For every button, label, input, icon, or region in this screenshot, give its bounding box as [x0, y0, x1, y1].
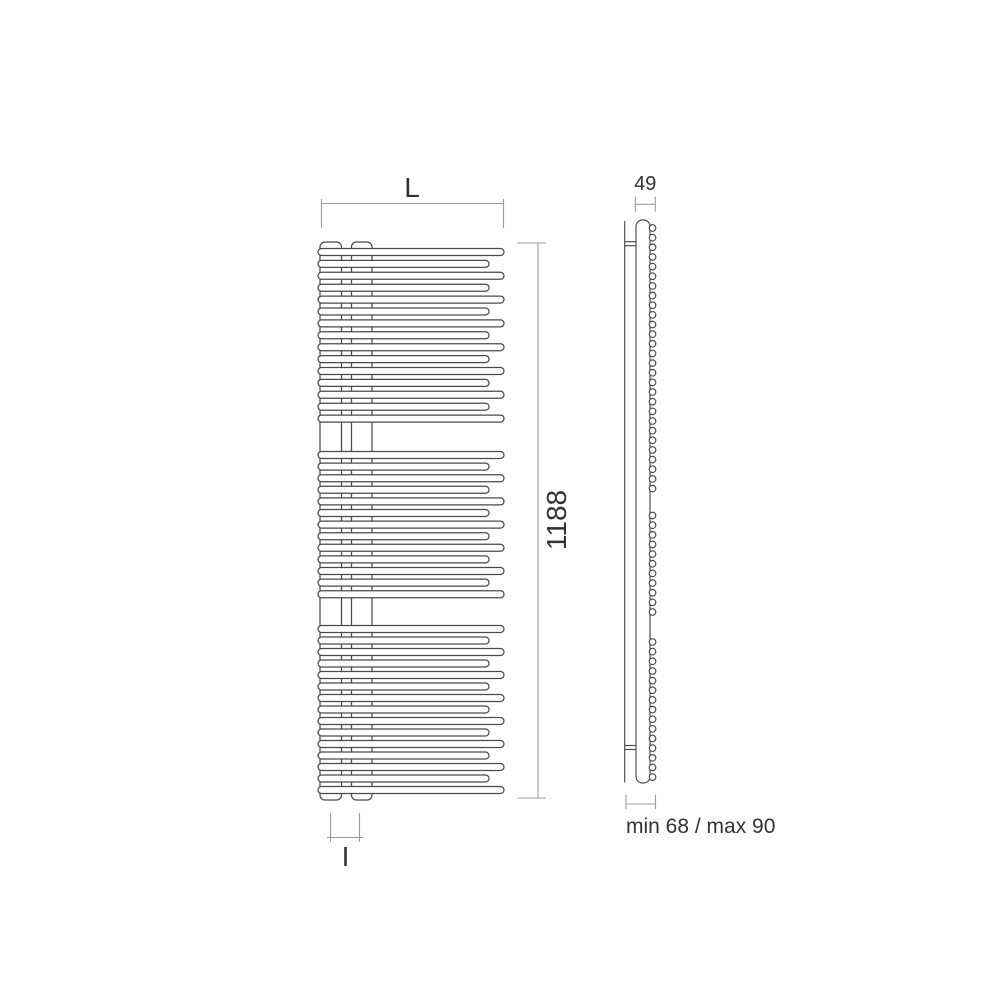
- tube-group3-row1: [318, 626, 504, 633]
- tube-end-circle-g3-12: [649, 745, 656, 752]
- tube-group1-row14: [318, 403, 489, 410]
- tube-end-circle-g1-10: [649, 312, 656, 319]
- tube-end-circle-g3-14: [649, 764, 656, 771]
- tube-end-circle-g3-11: [649, 735, 656, 742]
- tube-group3-row2: [318, 637, 489, 644]
- tube-group1-row9: [318, 344, 504, 351]
- tube-group2-row6: [318, 510, 489, 517]
- tube-end-circle-g3-4: [649, 668, 656, 675]
- tube-group3-row7: [318, 695, 504, 702]
- tube-end-circle-g1-13: [649, 341, 656, 348]
- tube-end-circle-g3-3: [649, 658, 656, 665]
- tube-end-circle-g1-2: [649, 234, 656, 241]
- tube-end-circle-g1-28: [649, 485, 656, 492]
- tube-group1-row8: [318, 332, 489, 339]
- dim-wall-distance: min 68 / max 90: [626, 795, 775, 838]
- tube-end-circle-g2-8: [649, 580, 656, 587]
- tube-end-circle-g1-18: [649, 389, 656, 396]
- tube-end-circle-g1-21: [649, 418, 656, 425]
- tube-group2-row3: [318, 475, 504, 482]
- tube-end-circle-g1-12: [649, 331, 656, 338]
- tube-end-circle-g3-7: [649, 697, 656, 704]
- tube-group1-row13: [318, 391, 504, 398]
- tube-end-circle-g2-10: [649, 599, 656, 606]
- dim-label-wall-distance: min 68 / max 90: [626, 815, 775, 838]
- tube-end-circle-g1-27: [649, 476, 656, 483]
- tube-group1-row15: [318, 415, 504, 422]
- tube-end-circle-g1-3: [649, 244, 656, 251]
- tube-end-circle-g1-7: [649, 283, 656, 290]
- tube-end-circle-g3-1: [649, 639, 656, 646]
- tube-end-circle-g2-3: [649, 532, 656, 539]
- radiator-dimension-diagram: L1188I49min 68 / max 90: [0, 0, 1000, 1000]
- tube-end-circle-g1-25: [649, 456, 656, 463]
- tube-end-circle-g2-7: [649, 570, 656, 577]
- tube-end-circle-g1-19: [649, 398, 656, 405]
- tube-end-circle-g1-20: [649, 408, 656, 415]
- tube-group3-row8: [318, 706, 489, 713]
- tube-end-circle-g1-26: [649, 466, 656, 473]
- tube-end-circle-g2-1: [649, 512, 656, 519]
- tube-end-circle-g1-4: [649, 254, 656, 261]
- tube-group3-row5: [318, 672, 504, 679]
- tube-end-circle-g3-10: [649, 726, 656, 733]
- dim-label-height: 1188: [541, 490, 572, 550]
- tube-group3-row11: [318, 741, 504, 748]
- tube-end-circle-g3-15: [649, 774, 656, 781]
- tube-group2-row4: [318, 486, 489, 493]
- side-view: [625, 220, 656, 783]
- tube-group3-row15: [318, 787, 504, 794]
- tube-group1-row5: [318, 296, 504, 303]
- tube-group3-row14: [318, 775, 489, 782]
- tube-group1-row11: [318, 368, 504, 375]
- tube-end-circle-g1-6: [649, 273, 656, 280]
- tube-end-circle-g3-9: [649, 716, 656, 723]
- tube-group2-row12: [318, 579, 489, 586]
- tube-end-circle-g1-9: [649, 302, 656, 309]
- tube-end-circle-g1-14: [649, 350, 656, 357]
- tube-group3-row3: [318, 649, 504, 656]
- front-view: [318, 242, 504, 800]
- dim-label-depth: 49: [634, 173, 656, 195]
- tube-group3-row10: [318, 729, 489, 736]
- dim-label-interaxis: I: [342, 841, 350, 872]
- tube-end-circle-g3-5: [649, 677, 656, 684]
- tube-end-circle-g2-9: [649, 589, 656, 596]
- tube-end-circle-g1-22: [649, 427, 656, 434]
- tube-group1-row3: [318, 272, 504, 279]
- tube-end-circle-g1-24: [649, 447, 656, 454]
- tube-group1-row7: [318, 320, 504, 327]
- tube-end-circle-g3-13: [649, 755, 656, 762]
- tube-end-circle-g2-4: [649, 541, 656, 548]
- tube-end-circle-g2-5: [649, 551, 656, 558]
- tube-group2-row5: [318, 498, 504, 505]
- tube-group2-row1: [318, 452, 504, 459]
- tube-end-circle-g1-16: [649, 369, 656, 376]
- tube-group2-row13: [318, 591, 504, 598]
- tube-end-circle-g1-8: [649, 292, 656, 299]
- dim-interaxis: I: [327, 813, 363, 872]
- tube-group1-row10: [318, 356, 489, 363]
- side-collector-pipe: [636, 220, 650, 783]
- dim-depth: 49: [634, 173, 656, 212]
- tube-group2-row7: [318, 521, 504, 528]
- tube-group2-row9: [318, 544, 504, 551]
- tube-end-circle-g1-1: [649, 225, 656, 232]
- tube-group1-row2: [318, 260, 489, 267]
- dim-label-width: L: [404, 172, 420, 203]
- tube-end-circle-g3-8: [649, 706, 656, 713]
- drawing-canvas: L1188I49min 68 / max 90: [0, 0, 1000, 1000]
- tube-end-circle-g2-11: [649, 609, 656, 616]
- tube-end-circle-g3-2: [649, 648, 656, 655]
- tube-end-circle-g1-15: [649, 360, 656, 367]
- tube-end-circle-g1-23: [649, 437, 656, 444]
- tube-group2-row11: [318, 568, 504, 575]
- tube-end-circle-g3-6: [649, 687, 656, 694]
- tube-end-circle-g1-5: [649, 263, 656, 270]
- tube-end-circle-g2-6: [649, 560, 656, 567]
- tube-group1-row6: [318, 308, 489, 315]
- tube-group3-row13: [318, 764, 504, 771]
- tube-group2-row8: [318, 533, 489, 540]
- tube-group1-row1: [318, 249, 504, 256]
- tube-group2-row2: [318, 463, 489, 470]
- tube-group2-row10: [318, 556, 489, 563]
- tube-end-circle-g1-11: [649, 321, 656, 328]
- tube-group1-row4: [318, 284, 489, 291]
- tube-end-circle-g1-17: [649, 379, 656, 386]
- tube-group3-row6: [318, 683, 489, 690]
- tube-end-circle-g2-2: [649, 522, 656, 529]
- dim-height: 1188: [517, 243, 572, 798]
- tube-group3-row9: [318, 718, 504, 725]
- tube-group1-row12: [318, 379, 489, 386]
- tube-group3-row4: [318, 660, 489, 667]
- dim-width: L: [322, 172, 504, 228]
- tube-group3-row12: [318, 752, 489, 759]
